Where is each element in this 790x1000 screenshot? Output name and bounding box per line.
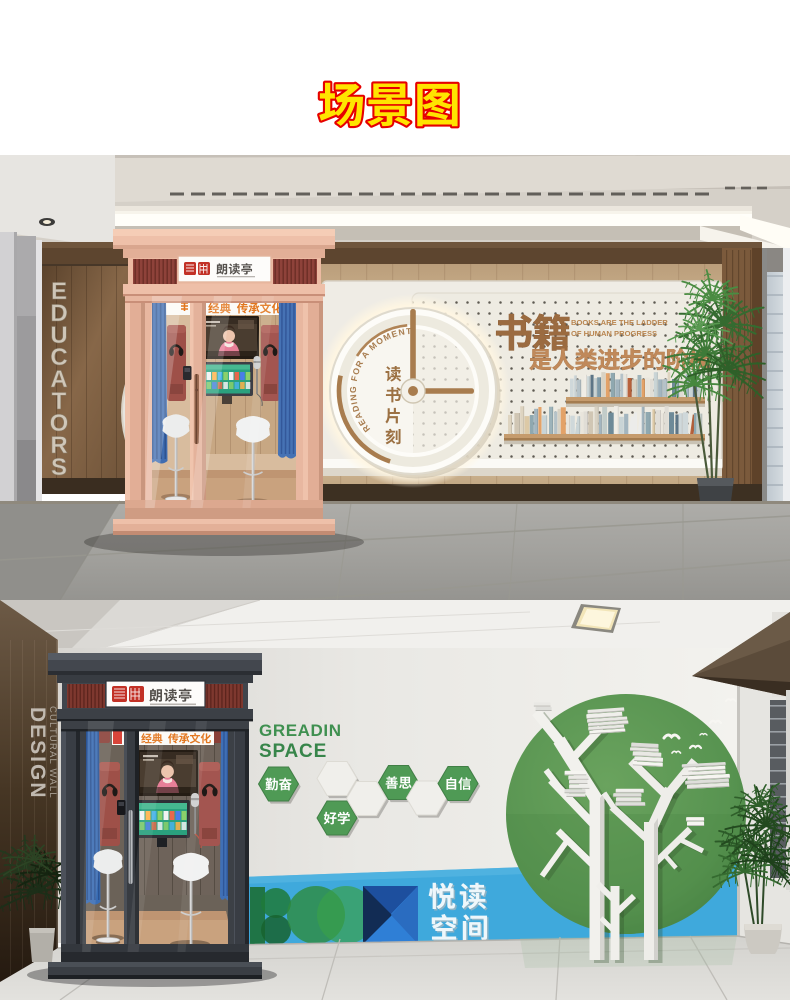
svg-text:OF HUMAN PROGRESS: OF HUMAN PROGRESS <box>571 329 657 338</box>
svg-text:BOOKS ARE THE LADDER: BOOKS ARE THE LADDER <box>571 318 668 327</box>
svg-text:DESIGN: DESIGN <box>26 707 49 800</box>
svg-text:GREADIN: GREADIN <box>259 721 342 740</box>
svg-text:SPACE: SPACE <box>259 741 327 762</box>
svg-text:CULTURAL WALL: CULTURAL WALL <box>47 706 58 799</box>
svg-text:S: S <box>51 454 67 481</box>
